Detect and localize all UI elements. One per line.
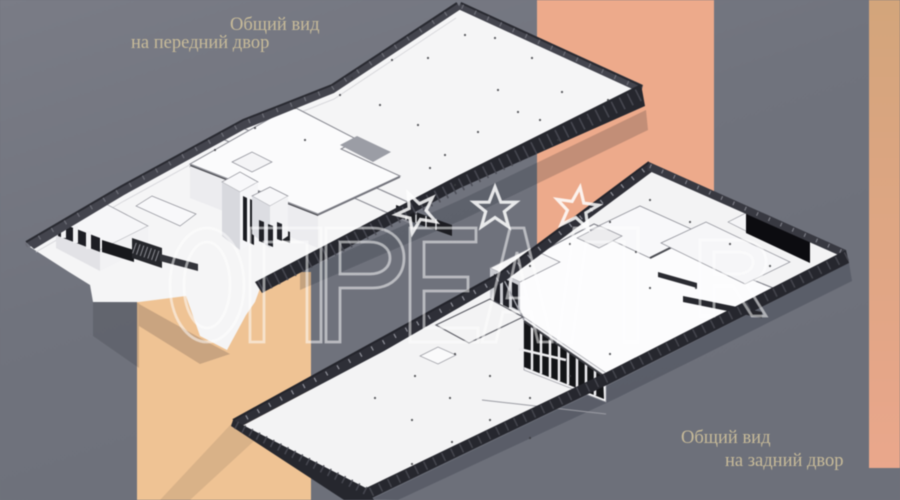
svg-text:на задний двор: на задний двор (725, 451, 844, 471)
svg-text:Общий вид: Общий вид (681, 428, 771, 448)
svg-text:на передний двор: на передний двор (131, 33, 269, 53)
svg-text:Общий вид: Общий вид (230, 15, 320, 35)
